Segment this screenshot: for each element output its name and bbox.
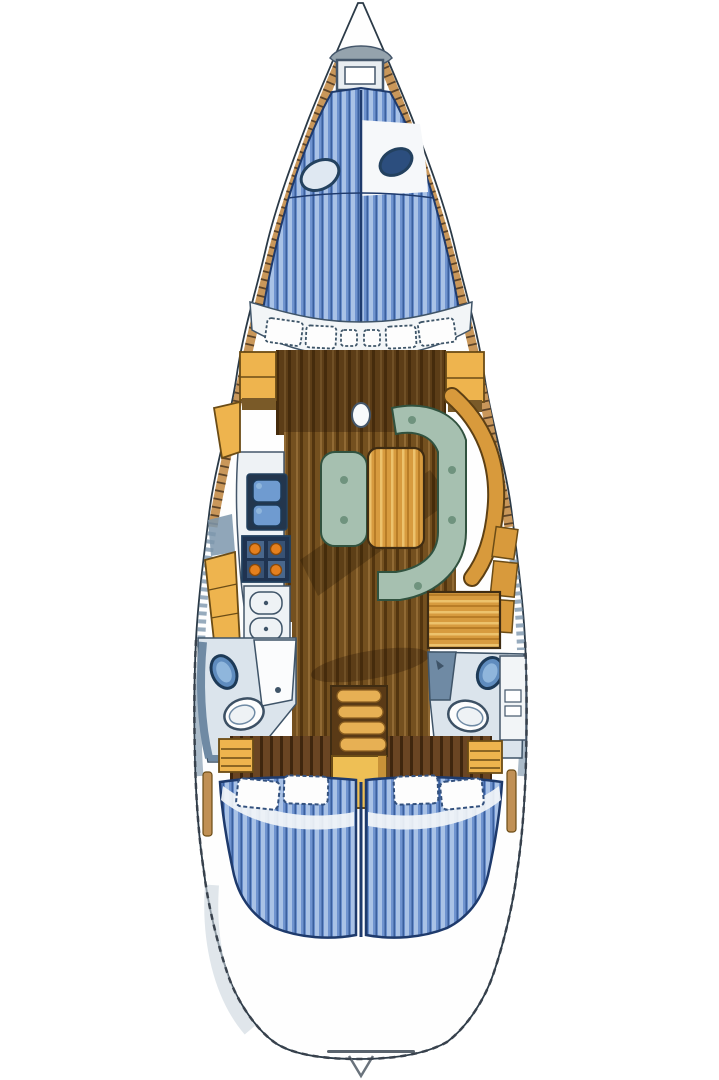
starboard-aft-lockers: [500, 656, 526, 740]
yacht-floorplan-figure: [0, 0, 719, 1080]
galley-stove: [242, 536, 290, 582]
forward-locker-port: [240, 352, 276, 410]
aft-post-port: [203, 772, 212, 836]
nav-table: [428, 592, 500, 648]
salon-bench: [321, 452, 367, 546]
aft-locker-starboard: [468, 741, 502, 773]
pillow: [236, 778, 281, 810]
v-berth: [260, 88, 462, 332]
pillow: [440, 778, 485, 810]
bow-hatch: [337, 60, 383, 90]
pillow: [394, 775, 439, 805]
aft-locker-port: [219, 739, 253, 772]
head-port-door: [254, 640, 296, 706]
galley-sink: [247, 474, 287, 530]
transom-line: [327, 1050, 415, 1053]
galley-hull-shelf: [208, 514, 235, 556]
mast-step: [352, 403, 370, 427]
pillow: [284, 775, 329, 805]
galley-fridge: [244, 586, 290, 644]
companionway-steps: [331, 686, 387, 756]
salon-table: [368, 448, 424, 548]
galley-locker-upper: [214, 402, 240, 458]
aft-post-starboard: [507, 770, 516, 832]
yacht-floorplan-page: [0, 0, 719, 1080]
